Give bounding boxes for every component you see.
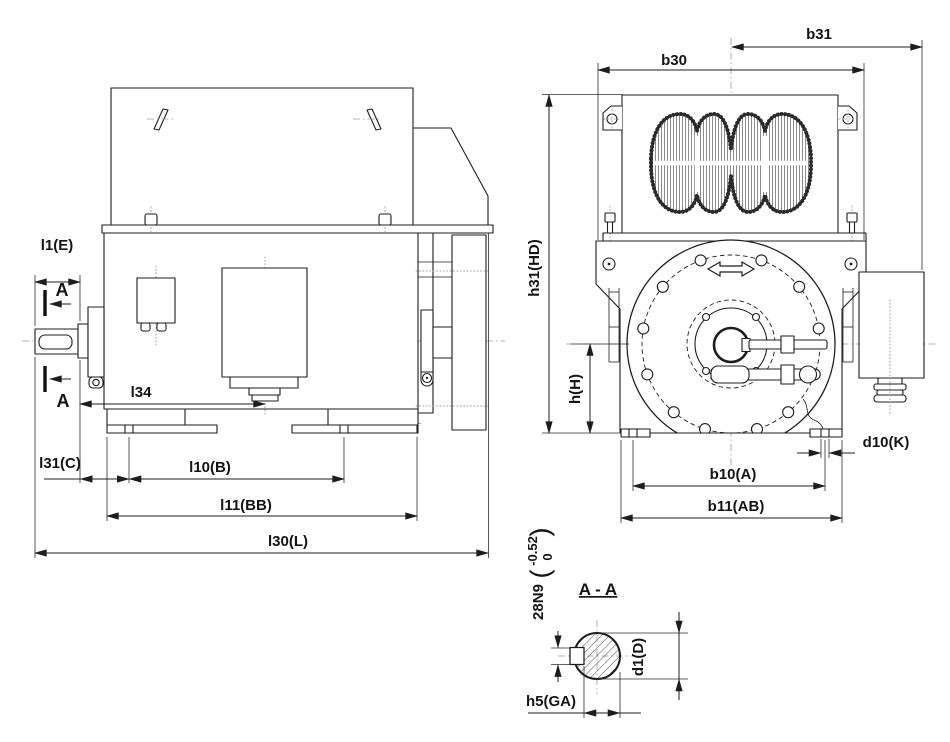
dim-label-h31: h31(HD) — [526, 239, 543, 297]
dim-label-keywidth: 28N9 — [530, 584, 547, 620]
dim-label-d1: d1(D) — [630, 638, 647, 676]
dim-label-h5: h5(GA) — [526, 693, 576, 710]
tolerance-upper: 0 — [540, 553, 555, 560]
dim-label-l31: l31(C) — [39, 455, 81, 472]
dim-label-b31: b31 — [806, 26, 832, 43]
dim-label-h: h(H) — [567, 374, 584, 404]
dim-label-l34: l34 — [131, 384, 153, 401]
dim-label-l11: l11(BB) — [220, 497, 272, 514]
section-title: A - A — [579, 580, 617, 599]
dim-label-b11: b11(AB) — [708, 498, 765, 515]
section-letter-top: A — [56, 280, 69, 300]
tolerance-paren-open: ( — [525, 570, 555, 579]
section-cut-marker-bottom: A — [45, 366, 71, 411]
dim-label-l30: l30(L) — [268, 533, 308, 550]
motor-dimension-drawing: l1(E) A A l34 l31(C) l10(B) l11(BB) — [0, 0, 950, 742]
tolerance-lower: -0.52 — [525, 536, 540, 566]
section-cut-marker-top: A — [45, 280, 71, 316]
section-letter-bottom: A — [57, 391, 70, 411]
frame-top-flange — [102, 225, 493, 233]
keyway-section — [570, 648, 584, 665]
drawing-svg: l1(E) A A l34 l31(C) l10(B) l11(BB) — [0, 0, 950, 742]
cooler-box-side — [111, 88, 413, 225]
terminal-box-front — [859, 272, 924, 414]
feet-side — [107, 409, 418, 433]
dim-label-d10: d10(K) — [863, 434, 910, 451]
dim-label-l10: l10(B) — [189, 459, 231, 476]
cable-duct — [413, 128, 488, 231]
side-view — [22, 88, 505, 433]
section-view: A - A 28N9 ( 0 -0.52 ) d1(D) h5(GA) — [525, 528, 688, 719]
bearing-flange — [88, 307, 104, 377]
dim-label-l1: l1(E) — [41, 237, 74, 254]
cooler-lug-left — [603, 106, 622, 130]
grease-fitting — [93, 379, 99, 385]
cooler-lug-right — [838, 106, 857, 130]
end-panel — [452, 235, 486, 430]
tolerance-paren-close: ) — [525, 528, 555, 537]
dim-label-b30: b30 — [661, 52, 687, 69]
dim-label-b10: b10(A) — [710, 466, 757, 483]
front-view — [566, 38, 938, 470]
